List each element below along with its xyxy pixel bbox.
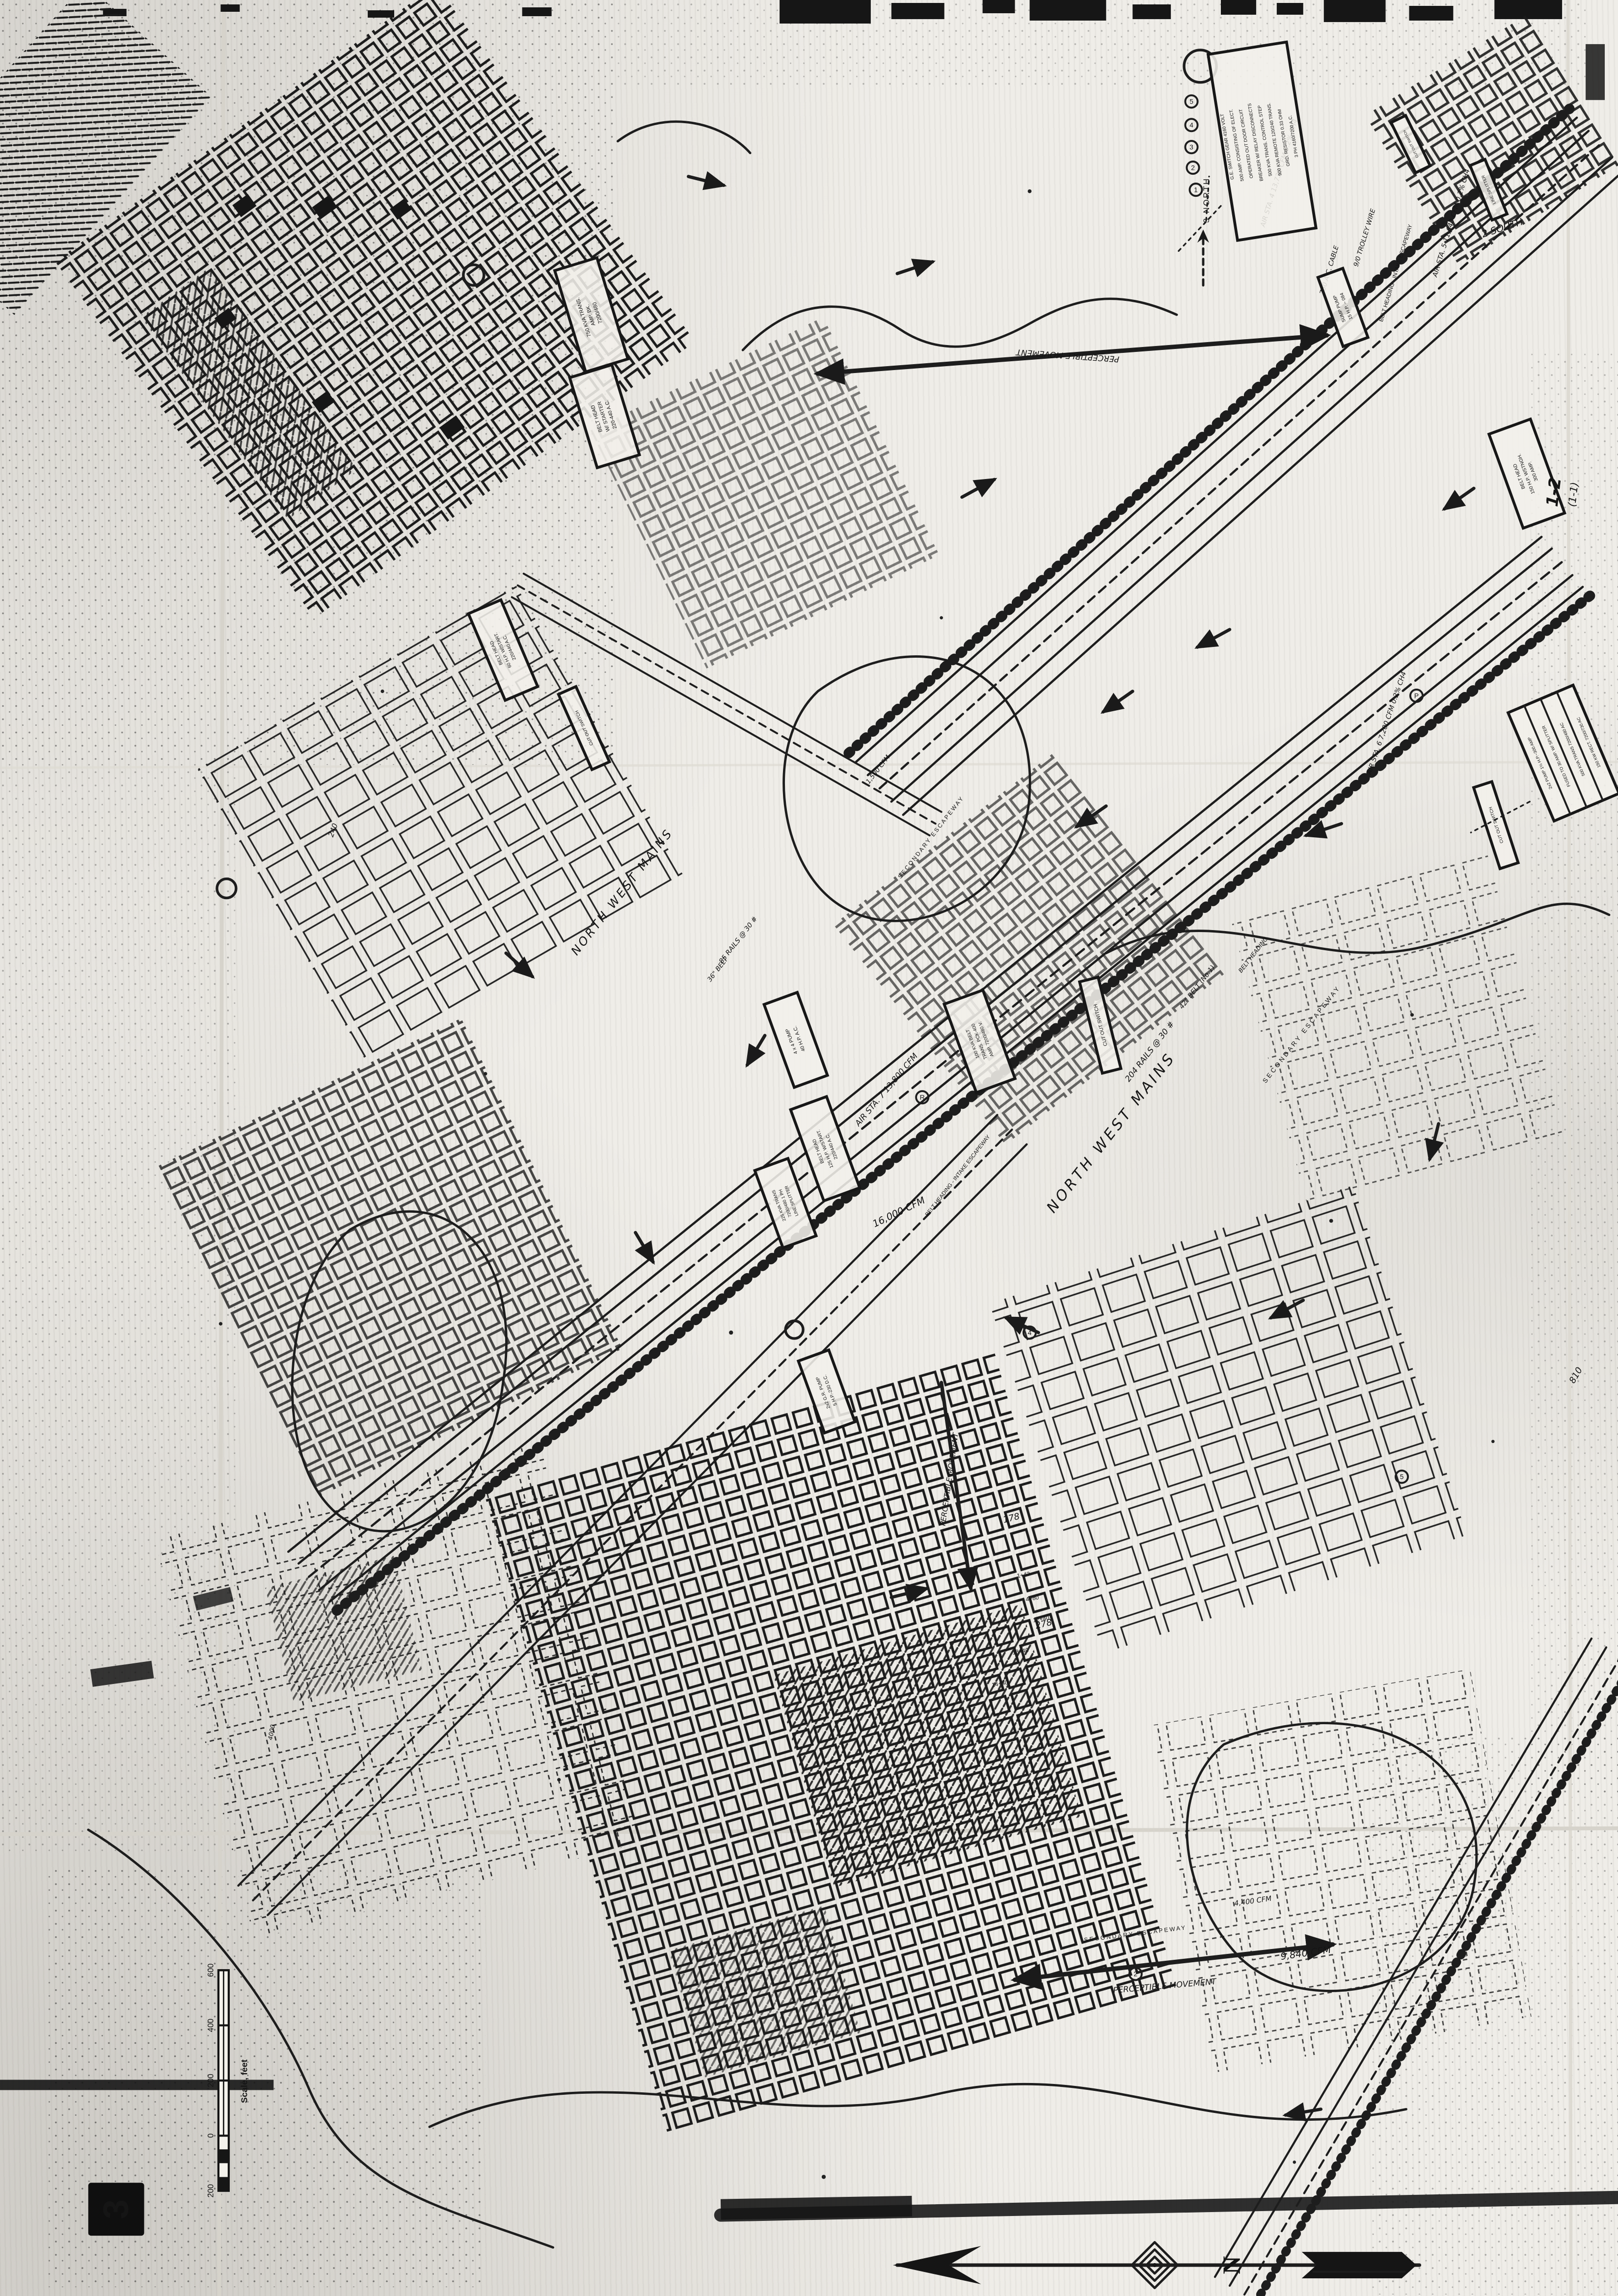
leader-lines	[1177, 177, 1530, 833]
circled-marker: 2	[1191, 164, 1195, 171]
label-air-sta-7: AIR STA. 7 13,800 CFM	[853, 1051, 919, 1128]
pillar-grid-right-center	[990, 1185, 1467, 1653]
scale-title: Scale, feet	[239, 2059, 249, 2103]
scale-tick-label: 400	[206, 2019, 215, 2032]
circled-marker: 3	[1189, 143, 1193, 151]
circled-marker: 5	[1400, 1473, 1404, 1481]
figure-number-text: 3	[97, 2199, 136, 2219]
figure-number: 3	[88, 2183, 144, 2236]
scale-tick-label: 200	[206, 2184, 215, 2197]
annotation-box-4x4-pump: 4 x 4 PUMP 40 H.P. A.C.	[764, 992, 828, 1088]
scale-tick-label: 600	[206, 1963, 215, 1976]
label-perceptible-movement-top: PERCEPTIBLE MOVEMENT	[1015, 347, 1119, 364]
three-north-arrow	[1197, 230, 1209, 289]
circled-marker: R	[920, 1094, 925, 1101]
label-3-north: 3 NORTH	[1202, 177, 1211, 223]
scale-tick-label: 0	[206, 2134, 215, 2138]
circled-marker: 5	[1189, 98, 1193, 106]
north-arrow-diamond	[1132, 2242, 1178, 2288]
page-ref-line1: 1-2	[1542, 477, 1565, 508]
annotation-box-belt-head-125: BELT HEAD 125 H.P. W/START. 220/440 A.C.	[791, 1096, 860, 1201]
annotation-box-225kva: 225 KVA TRANS 7200/480 1 PH LINE SPLITTE…	[755, 1158, 816, 1248]
scale-tick-label: 200	[206, 2074, 215, 2087]
circled-marker: 2	[1133, 1970, 1137, 1977]
circled-marker: P	[1414, 692, 1419, 699]
north-arrow-feather	[1302, 2252, 1417, 2278]
circled-marker: 4	[1028, 1329, 1032, 1336]
circled-marker: 1	[1194, 186, 1198, 193]
scanned-mine-map-sheet: 5 4 3 2 1 2 5 4 P R NORTH WEST MAINS NOR…	[0, 0, 1618, 2296]
label-belt-intake-escapeway-2: BELT HEADING - INTAKE ESCAPEWAY	[924, 1134, 992, 1218]
map-canvas: 5 4 3 2 1 2 5 4 P R NORTH WEST MAINS NOR…	[0, 0, 1618, 2296]
label-trolley-wire: 9/0 TROLLEY WIRE	[1352, 208, 1377, 267]
circled-marker: 4	[1189, 122, 1193, 129]
pillar-grid-right-dotted	[1232, 853, 1564, 1206]
north-label: N	[1218, 2256, 1246, 2274]
